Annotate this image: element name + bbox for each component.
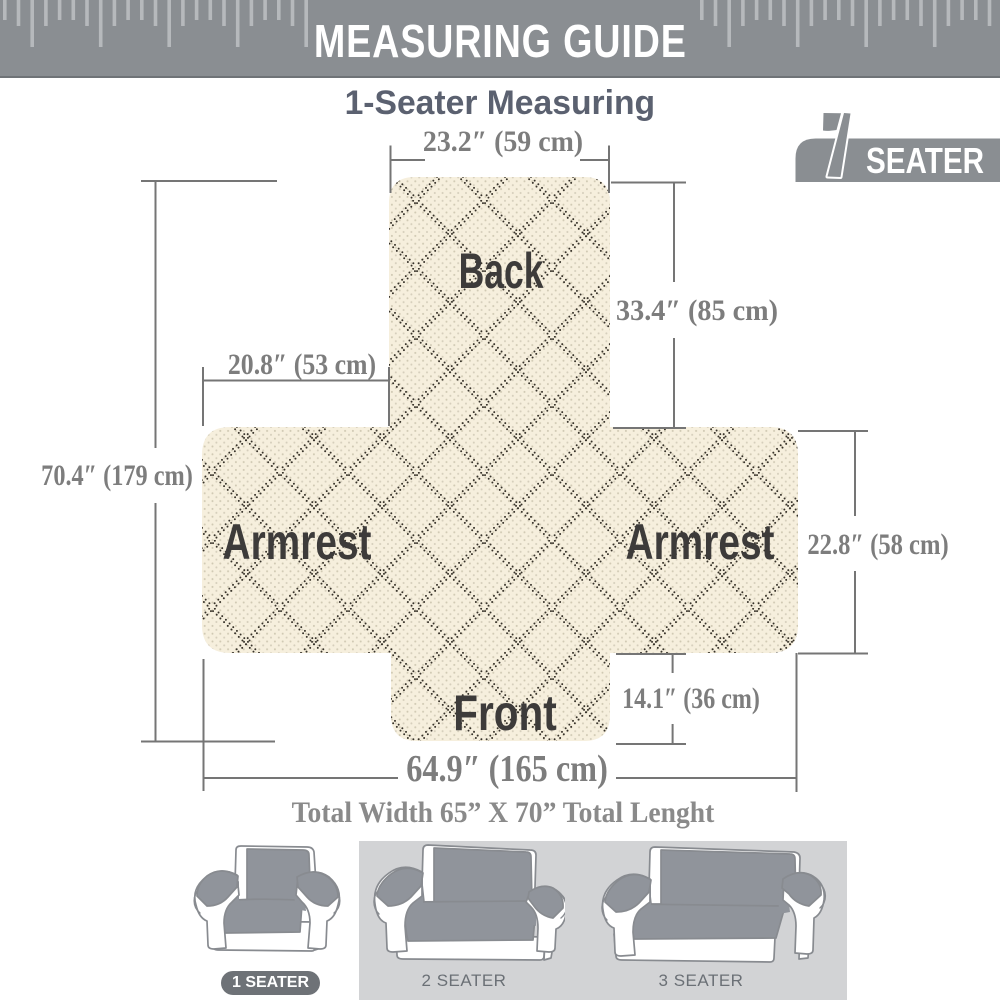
svg-text:Armrest: Armrest	[626, 514, 775, 570]
svg-text:23.2″ (59 cm): 23.2″ (59 cm)	[423, 125, 583, 158]
svg-text:14.1″ (36 cm): 14.1″ (36 cm)	[622, 681, 760, 714]
svg-text:Armrest: Armrest	[223, 514, 372, 570]
svg-text:20.8″ (53 cm): 20.8″ (53 cm)	[228, 348, 376, 381]
svg-text:33.4″ (85 cm): 33.4″ (85 cm)	[616, 294, 778, 327]
svg-text:Front: Front	[453, 685, 556, 741]
svg-text:22.8″ (58 cm): 22.8″ (58 cm)	[807, 528, 948, 561]
svg-text:70.4″ (179 cm): 70.4″ (179 cm)	[41, 459, 193, 492]
svg-text:Total Width 65” X 70” Total Le: Total Width 65” X 70” Total Lenght	[292, 796, 715, 829]
svg-text:64.9″ (165 cm): 64.9″ (165 cm)	[406, 748, 608, 790]
svg-text:Back: Back	[459, 244, 545, 299]
